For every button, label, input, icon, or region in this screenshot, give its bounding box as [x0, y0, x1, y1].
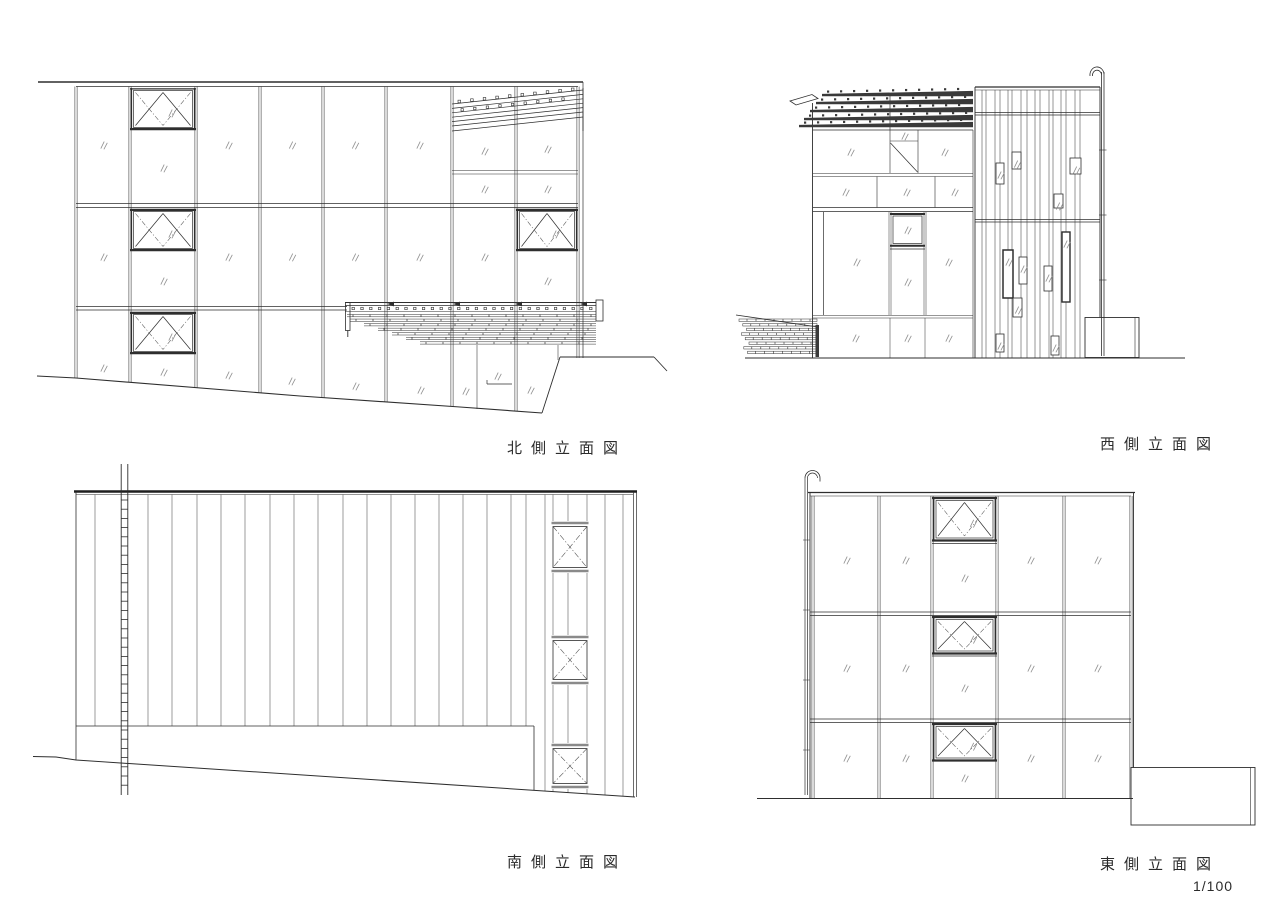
south-elevation-drawing: [20, 450, 760, 870]
roof-ladder: [121, 464, 128, 795]
deck-louvers: [345, 300, 603, 344]
curtain-wall-mullions: [75, 82, 583, 411]
slot-windows: [996, 152, 1081, 355]
ground-line: [33, 757, 635, 798]
casement-windows: [552, 521, 589, 789]
slat-pile: [736, 315, 819, 357]
glass-volume: [813, 96, 974, 358]
base-block: [1085, 318, 1139, 358]
north-elevation-panel: [20, 50, 720, 470]
west-elevation-panel: [720, 40, 1200, 380]
east-elevation-label: 東側立面図: [1100, 853, 1220, 874]
west-elevation-label: 西側立面図: [1100, 433, 1220, 454]
roof-canopy-louvers: [452, 88, 583, 131]
low-block: [1131, 768, 1255, 826]
drawing-sheet: 北側立面図 西側立面図 南側立面図 東側立面図 1/100: [0, 0, 1280, 904]
downspout: [1090, 67, 1107, 356]
pergola-louvers: [790, 88, 973, 127]
south-elevation-label: 南側立面図: [507, 851, 627, 872]
east-elevation-drawing: [750, 450, 1280, 870]
north-elevation-drawing: [20, 50, 720, 470]
entrance-arrow: [487, 380, 512, 384]
glass-marks: [843, 133, 959, 343]
scale-label: 1/100: [1193, 878, 1233, 894]
west-elevation-drawing: [720, 40, 1200, 380]
east-elevation-panel: [750, 450, 1280, 870]
north-elevation-label: 北側立面図: [507, 437, 627, 458]
downspout: [803, 471, 820, 795]
glass-marks: [101, 142, 552, 396]
siding-volume: [975, 87, 1100, 358]
south-elevation-panel: [20, 450, 760, 870]
eave-lines: [38, 82, 583, 87]
ground-line: [37, 357, 667, 413]
awning-windows: [932, 498, 997, 761]
